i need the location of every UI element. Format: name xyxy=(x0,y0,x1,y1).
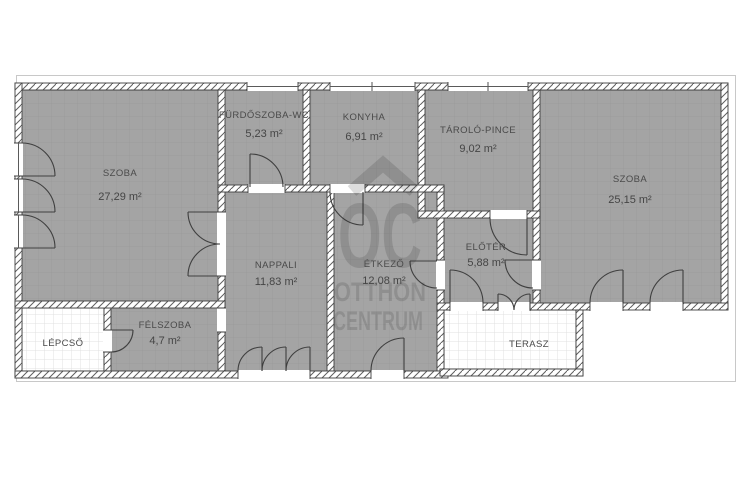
room-area: 5,23 m² xyxy=(245,128,283,140)
room-name: FÜRDŐSZOBA-WC xyxy=(219,110,309,121)
watermark-initials: OC xyxy=(338,185,422,287)
room-area: 27,29 m² xyxy=(98,191,142,203)
room-name: NAPPALI xyxy=(255,260,297,271)
watermark: OC OTTHON CENTRUM xyxy=(333,164,426,336)
room-area: 4,7 m² xyxy=(149,335,181,347)
wall-right xyxy=(721,83,728,310)
room-name: KONYHA xyxy=(343,112,386,123)
wall-terasz-right xyxy=(576,310,583,376)
room-area: 11,83 m² xyxy=(255,276,298,288)
room-name: FÉLSZOBA xyxy=(139,320,192,331)
room-area: 5,88 m² xyxy=(467,257,505,269)
room-name: TÁROLÓ-PINCE xyxy=(440,125,516,136)
room-name: SZOBA xyxy=(613,174,647,185)
room-name: ELŐTÉR xyxy=(466,242,506,253)
wall-furdo-konyha xyxy=(303,90,310,192)
room-label-terasz: TERASZ xyxy=(509,339,549,350)
watermark-centrum: CENTRUM xyxy=(333,306,423,336)
room-area: 9,02 m² xyxy=(459,143,497,155)
room-name: LÉPCSŐ xyxy=(43,338,84,349)
room-label-lepcso: LÉPCSŐ xyxy=(43,338,84,349)
room-area: 12,08 m² xyxy=(362,275,406,287)
room-name: SZOBA xyxy=(103,168,137,179)
floor-plan-page: OC OTTHON CENTRUM SZOBA 27,29 m² FÜRDŐSZ… xyxy=(0,0,753,500)
wall-szoba-left-bottom xyxy=(15,301,225,308)
room-name: TERASZ xyxy=(509,339,549,350)
room-area: 6,91 m² xyxy=(345,131,383,143)
floor-plan-canvas: OC OTTHON CENTRUM SZOBA 27,29 m² FÜRDŐSZ… xyxy=(0,0,753,500)
wall-terasz-bottom xyxy=(440,369,583,376)
room-area: 25,15 m² xyxy=(608,194,652,206)
wall-nappali-etkezo xyxy=(327,185,334,371)
room-name: ÉTKEZŐ xyxy=(364,259,404,270)
